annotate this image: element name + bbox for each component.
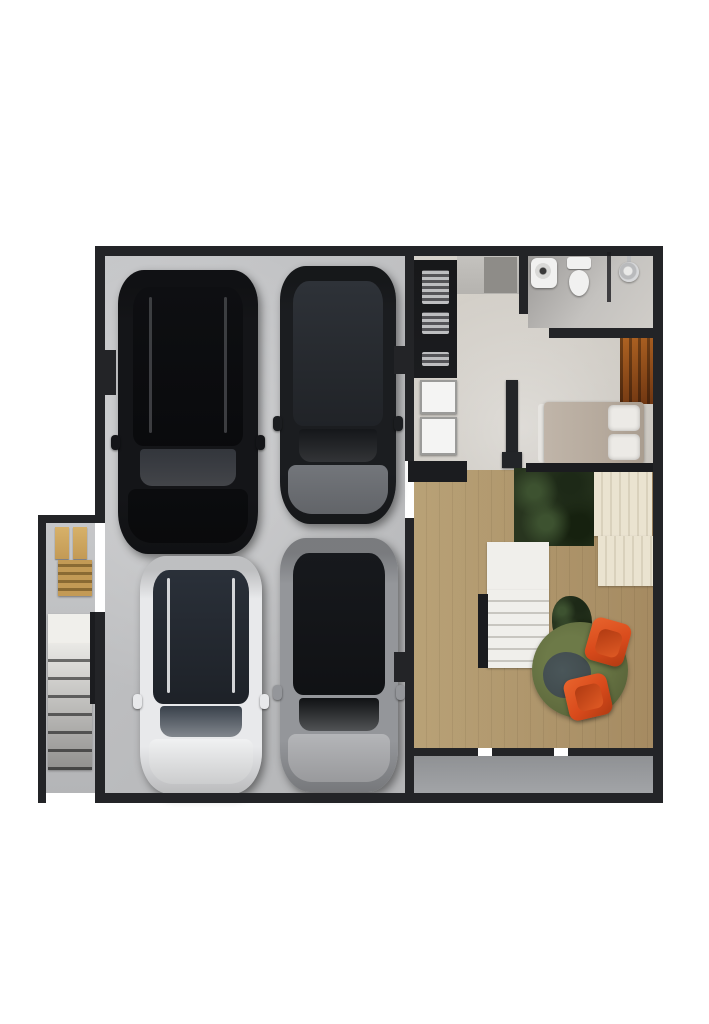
kitchen-end-wall	[408, 461, 467, 482]
bed-pillow	[608, 405, 640, 431]
wood-bench	[58, 560, 92, 596]
wall-left-lower	[95, 612, 105, 793]
wall-top	[95, 246, 663, 256]
pilaster-divider-upper	[394, 346, 405, 374]
floor-plan-canvas	[0, 0, 709, 1024]
slat-deck-lower	[598, 536, 658, 586]
pilaster-left	[105, 350, 116, 395]
stair-landing	[487, 542, 549, 590]
wall-bottom	[95, 793, 663, 803]
bench-leg	[73, 527, 87, 559]
car-mirror-icon	[256, 435, 265, 450]
bench-leg	[55, 527, 69, 559]
pilaster-divider-lower	[394, 652, 405, 682]
white-appliance-upper	[420, 380, 457, 414]
car-black-suv	[118, 270, 258, 554]
car-windshield	[299, 429, 378, 463]
annex-stair-landing	[48, 614, 92, 644]
car-mirror-icon	[111, 435, 120, 450]
car-hood	[288, 734, 390, 782]
kitchen-shelf	[422, 312, 450, 334]
divider-wall-lower	[405, 518, 414, 793]
car-roof	[293, 553, 385, 695]
terrace-wall-c	[568, 748, 653, 756]
bed-base-ledge	[526, 463, 653, 472]
car-mirror-icon	[394, 416, 403, 431]
bath-wall-left	[519, 252, 528, 314]
car-mirror-icon	[273, 416, 282, 431]
wall-left-upper	[95, 246, 105, 523]
terrace-wall-b	[492, 748, 554, 756]
car-dark-gray-suv	[280, 266, 396, 524]
divider-wall-upper	[405, 246, 414, 461]
white-appliance-lower	[420, 417, 457, 455]
annex-wall-top	[38, 515, 95, 523]
shower-glass-divider	[607, 252, 611, 302]
car-windshield	[299, 698, 379, 731]
car-windshield	[160, 706, 243, 737]
kitchenette	[414, 260, 457, 378]
car-hood	[288, 465, 388, 514]
kitchen-shelf	[422, 270, 450, 304]
car-hood	[149, 739, 254, 784]
car-windshield	[140, 449, 235, 486]
bath-sink	[531, 258, 557, 288]
car-mirror-icon	[273, 685, 282, 700]
car-roof	[153, 570, 248, 703]
terrace-floor	[414, 756, 653, 793]
car-hood	[128, 489, 248, 543]
car-mirror-icon	[260, 694, 269, 709]
car-silver	[280, 538, 398, 792]
bed-pillow	[608, 434, 640, 460]
bath-wall-bottom	[549, 328, 663, 338]
car-mirror-icon	[133, 694, 142, 709]
stair-stringer	[478, 594, 488, 668]
planting-bed	[514, 468, 594, 546]
car-mirror-icon	[396, 685, 405, 700]
kitchen-sink-module	[484, 257, 517, 293]
annex-wall-left	[38, 515, 46, 803]
kitchen-shelf	[422, 352, 450, 366]
car-white-suv	[140, 556, 262, 794]
wood-wardrobe	[620, 336, 655, 404]
shower-head-icon	[619, 262, 639, 282]
slat-deck-upper	[594, 470, 652, 536]
tv-panel-base	[502, 452, 522, 468]
car-roof	[293, 281, 384, 425]
car-roof	[133, 287, 242, 446]
terrace-wall-a	[414, 748, 478, 756]
toilet-tank	[567, 257, 591, 269]
annex-stairs	[48, 644, 92, 770]
